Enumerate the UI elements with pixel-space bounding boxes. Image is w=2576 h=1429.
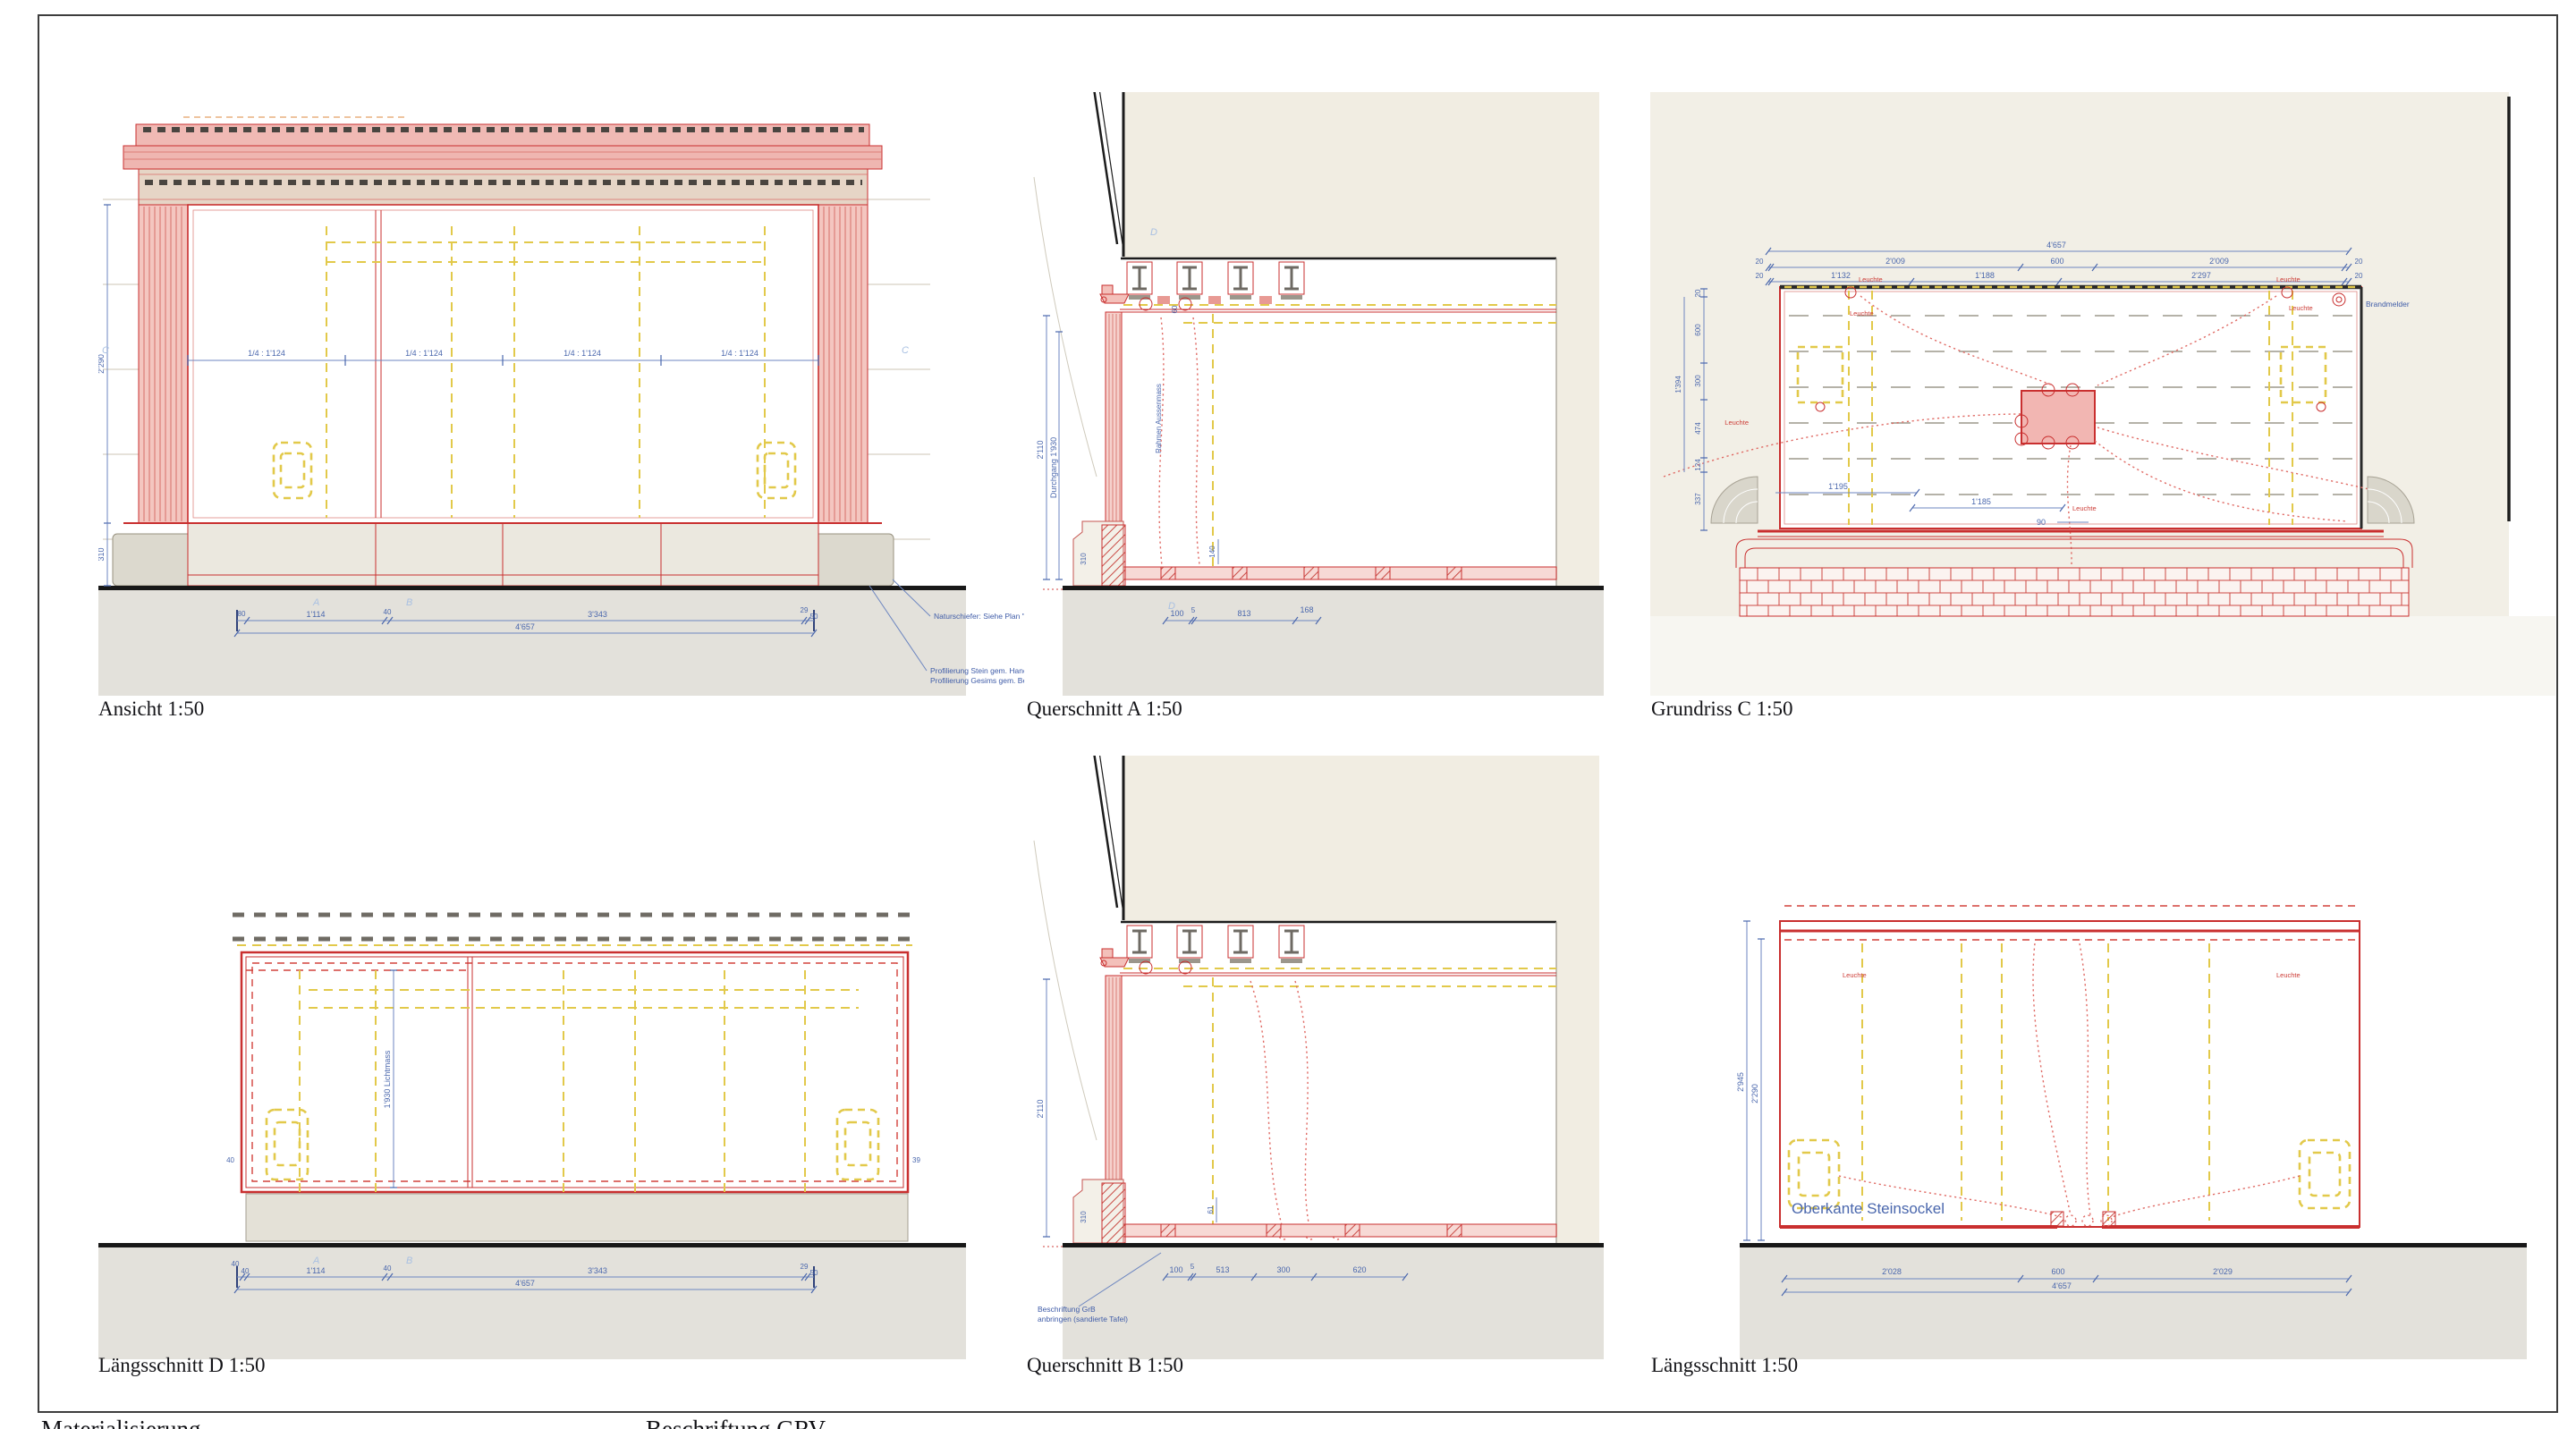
dim-label: 124 (1694, 459, 1702, 471)
dim-label: 29 (801, 606, 809, 614)
dim-total: 4'657 (2046, 241, 2066, 249)
laengsschnitt-d-drawing: 1'930 Lichtmass 40 39 40 40 1'114 40 3'3… (98, 756, 1024, 1359)
dim-label: 2'110 (1036, 1099, 1045, 1118)
dim-label: 80 (238, 610, 246, 618)
pilaster-right (818, 205, 868, 523)
dim-label: 20 (2355, 272, 2363, 280)
dim-label: 140 (1208, 545, 1216, 558)
dim-total: 4'657 (2052, 1281, 2072, 1290)
panel-title-laengsschnitt: Längsschnitt 1:50 (1651, 1354, 1798, 1377)
section-box (1780, 921, 2360, 1227)
vertical-dims: 2'110 310 61 (1036, 979, 1216, 1237)
table (2015, 384, 2095, 449)
dim-label: 2'029 (2213, 1267, 2233, 1276)
panel-title-laengsschnitt-d: Längsschnitt D 1:50 (98, 1354, 266, 1377)
section-marker-c: C (102, 345, 109, 356)
ground-fill (98, 1247, 966, 1359)
section-marker-d: D (1168, 601, 1175, 612)
dim-label: 2'028 (1882, 1267, 1902, 1276)
interior-lines (1183, 977, 1556, 1239)
dim-label: 1'114 (306, 1266, 325, 1275)
dim-label: 1'185 (1971, 497, 1991, 506)
dim-label: 513 (1216, 1265, 1229, 1274)
dim-label: 168 (1300, 605, 1313, 614)
section-marker-a: A (312, 1256, 319, 1266)
panel-title-ansicht: Ansicht 1:50 (98, 698, 204, 721)
dim-label: 40 (384, 608, 392, 616)
dim-label: 310 (1080, 553, 1088, 565)
dim-label: 90 (2037, 518, 2046, 527)
dim-label: 1/4 : 1'124 (405, 349, 443, 358)
light-label: Leuchte (1724, 419, 1749, 427)
footer-materialisierung: Materialisierung (41, 1416, 200, 1429)
ground-line (98, 586, 966, 590)
dim-label: 60 (1171, 305, 1179, 313)
ground-line (98, 1243, 966, 1247)
dim-label: 20 (1756, 258, 1764, 266)
dim-label: Durchgang 1'930 (1049, 437, 1058, 498)
frame-outer-label: Rahmen Aussenmass (1155, 384, 1163, 453)
dim-label: 5 (1191, 606, 1196, 614)
note-text: Profilierung Gesims gem. Bemusterung vom… (930, 676, 1024, 685)
dim-label: 50 (810, 1269, 818, 1277)
dim-label: 600 (2050, 257, 2063, 266)
dim-total: 4'657 (515, 622, 535, 631)
section-marker-a: A (312, 597, 319, 608)
dim-label: 2'945 (1736, 1072, 1745, 1092)
light-label: Leuchte (2289, 304, 2313, 312)
dim-label: 40 (384, 1264, 392, 1273)
ground-fill (1740, 1247, 2527, 1359)
querschnitt-b-drawing: 2'110 310 61 100 5 513 300 620 Beschrift… (1027, 756, 1604, 1359)
dim-label: 2'110 (1036, 440, 1045, 459)
section-marker-d: D (1150, 227, 1157, 238)
dim-label: 1'188 (1975, 271, 1995, 280)
ceiling-beams (1120, 926, 1556, 976)
light-label: Leuchte (2276, 275, 2301, 283)
dim-label: 620 (1352, 1265, 1366, 1274)
section-marker-b: B (406, 1256, 412, 1266)
section-marker-c: C (902, 345, 909, 356)
dim-label: 337 (1694, 493, 1702, 505)
ground-line (1063, 586, 1604, 590)
panel-title-querschnitt-a: Querschnitt A 1:50 (1027, 698, 1182, 721)
dim-label: 1/4 : 1'124 (721, 349, 758, 358)
note-text: Naturschiefer: Siehe Plan "Schnittstelle… (934, 612, 1024, 621)
dim-label: 474 (1694, 422, 1702, 435)
dim-label: 2'290 (98, 354, 106, 374)
dim-label: 20 (2355, 258, 2363, 266)
grundriss-drawing: 4'657 20 2'009 600 2'009 20 20 1'132 1'1… (1650, 92, 2555, 696)
light-label: Leuchte (2276, 971, 2301, 979)
dim-label: 20 (1756, 272, 1764, 280)
dim-label: 100 (1169, 1265, 1182, 1274)
section-box (241, 952, 908, 1192)
light-label: Leuchte (1843, 971, 1867, 979)
dim-label: 1/4 : 1'124 (248, 349, 285, 358)
laengsschnitt-drawing: Leuchte Leuchte Oberkante Steinsockel 2'… (1650, 756, 2555, 1359)
forecourt-fill (1650, 616, 2555, 696)
dim-label: 300 (1276, 1265, 1290, 1274)
dim-label: 1'195 (1828, 482, 1848, 491)
stone-base-caption: Oberkante Steinsockel (1792, 1200, 1945, 1217)
floor-section (1120, 567, 1556, 579)
plinth (246, 1194, 908, 1241)
dim-label: 1'930 Lichtmass (383, 1050, 392, 1108)
dim-label: 310 (98, 547, 106, 561)
dim-label: 600 (1694, 324, 1702, 336)
left-dims: 2'290 310 (98, 205, 111, 586)
drawing-sheet: 1/4 : 1'124 1/4 : 1'124 1/4 : 1'124 1/4 … (0, 0, 2576, 1429)
dim-total: 4'657 (515, 1279, 535, 1288)
roof-hidden-lines (233, 915, 917, 945)
dim-label: 20 (1694, 289, 1702, 297)
querschnitt-a-drawing: 2'110 Durchgang 1'930 60 Rahmen Aussenma… (1027, 92, 1604, 696)
floor-section (1120, 1224, 1556, 1237)
dim-label: 40 (226, 1156, 234, 1164)
note-text: Beschriftung GrB (1038, 1305, 1096, 1314)
ansicht-drawing: 1/4 : 1'124 1/4 : 1'124 1/4 : 1'124 1/4 … (98, 92, 1024, 696)
vertical-dims: 2'110 Durchgang 1'930 60 Rahmen Aussenma… (1036, 305, 1218, 579)
dim-label: 1/4 : 1'124 (563, 349, 601, 358)
ground-line (1740, 1243, 2527, 1247)
ground-fill (98, 590, 966, 696)
note-text: anbringen (sandierte Tafel) (1038, 1315, 1128, 1323)
dim-label: 1'132 (1831, 271, 1851, 280)
plinth (113, 523, 894, 586)
dim-label: 29 (801, 1263, 809, 1271)
footer-beschriftung: Beschriftung GRV (646, 1416, 826, 1429)
dim-label: 2'297 (2191, 271, 2211, 280)
dim-label: 2'009 (1885, 257, 1905, 266)
fire-detector-note: Brandmelder (2366, 300, 2410, 309)
dim-label: 600 (2051, 1267, 2064, 1276)
ground-line (1063, 1243, 1604, 1247)
ceiling-beams (1120, 262, 1556, 312)
dim-label: 50 (810, 613, 818, 621)
roof-cornice (123, 124, 882, 205)
dim-label: 2'009 (2209, 257, 2229, 266)
ground-fill (1063, 590, 1604, 696)
dim-label: 40 (232, 1260, 240, 1268)
dim-label: 5 (1191, 1263, 1195, 1271)
dim-label: 61 (1207, 1205, 1215, 1213)
dim-label: 310 (1080, 1211, 1088, 1223)
dim-label: 39 (912, 1156, 920, 1164)
interior-lines (1159, 314, 1556, 579)
dim-label: 300 (1694, 375, 1702, 387)
pilaster-left (139, 205, 188, 523)
dim-label: 40 (241, 1267, 250, 1275)
left-dims: 2'945 2'290 (1736, 921, 1765, 1240)
dim-label: 813 (1237, 609, 1250, 618)
dim-label: 2'290 (1750, 1084, 1759, 1103)
dim-label: 1'114 (306, 610, 325, 619)
panel-title-grundriss: Grundriss C 1:50 (1651, 698, 1792, 721)
dim-label: 3'343 (588, 610, 607, 619)
light-label: Leuchte (1850, 309, 1874, 317)
dim-label: 3'343 (588, 1266, 607, 1275)
light-label: Leuchte (2072, 504, 2097, 512)
section-marker-b: B (406, 597, 412, 608)
dim-total: 1'394 (1674, 376, 1682, 393)
note-text: Profilierung Stein gem. Handskizze vom 0… (930, 666, 1024, 675)
panel-title-querschnitt-b: Querschnitt B 1:50 (1027, 1354, 1183, 1377)
light-label: Leuchte (1859, 275, 1883, 283)
